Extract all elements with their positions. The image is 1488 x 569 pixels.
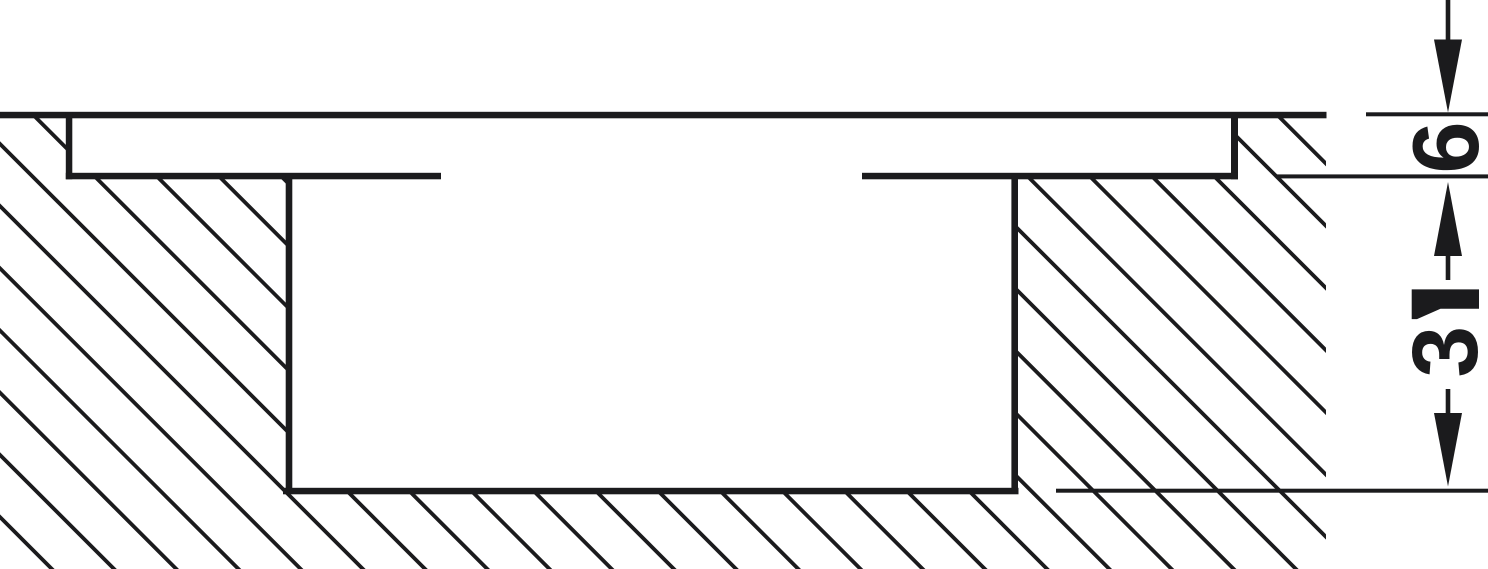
svg-text:3: 3	[1393, 326, 1488, 378]
svg-text:6: 6	[1393, 121, 1488, 173]
